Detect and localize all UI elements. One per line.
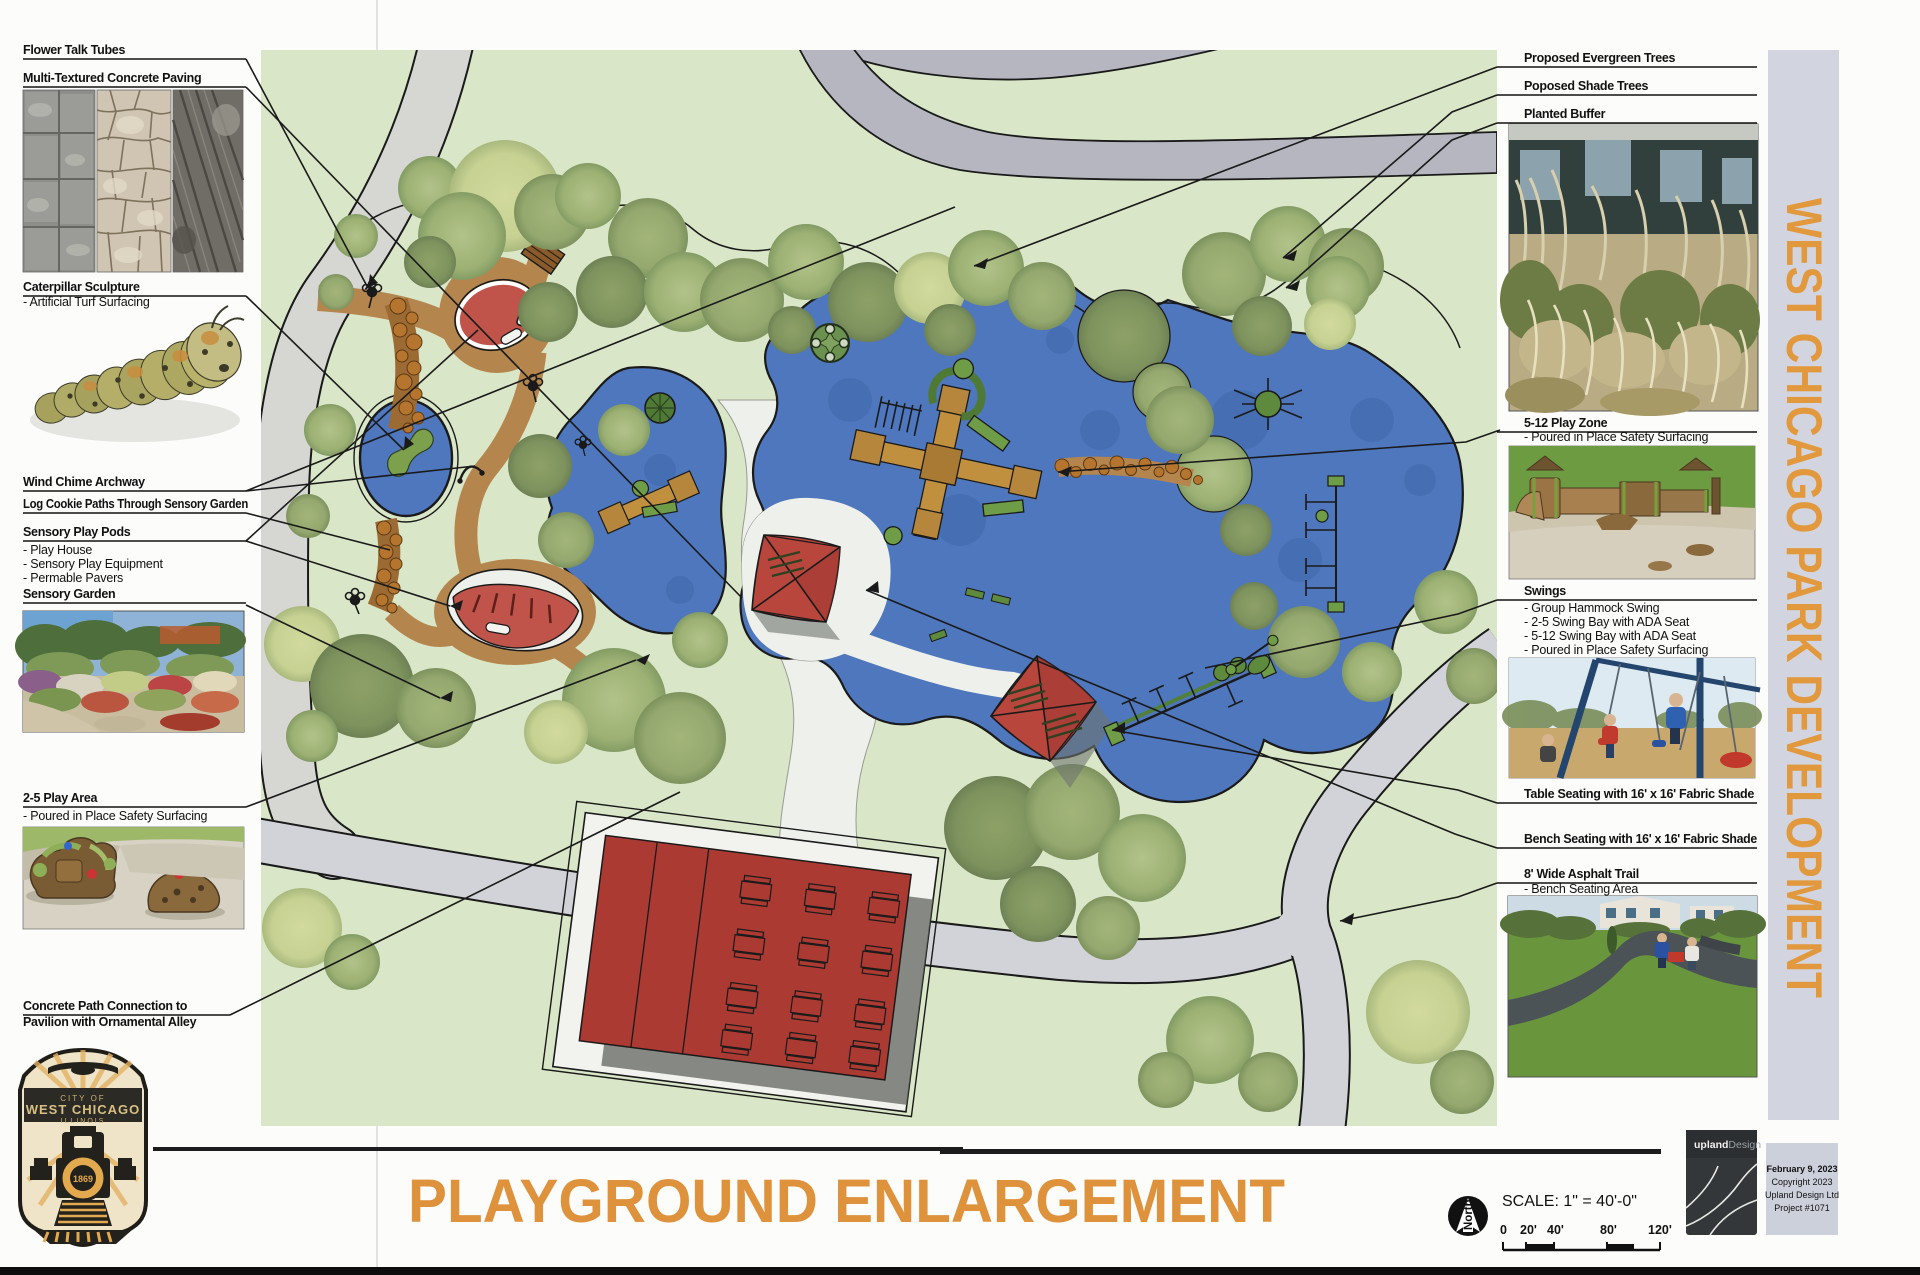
svg-text:Planted Buffer: Planted Buffer xyxy=(1524,107,1606,121)
svg-text:WEST CHICAGO PARK DEVELOPMENT: WEST CHICAGO PARK DEVELOPMENT xyxy=(1776,198,1832,998)
svg-text:0: 0 xyxy=(1500,1223,1507,1237)
svg-text:Upland Design Ltd: Upland Design Ltd xyxy=(1765,1190,1839,1200)
svg-text:ILLINOIS: ILLINOIS xyxy=(61,1118,106,1125)
svg-text:Table Seating with 16' x 16' F: Table Seating with 16' x 16' Fabric Shad… xyxy=(1524,787,1754,801)
svg-text:uplandDesign: uplandDesign xyxy=(1694,1139,1761,1151)
svg-text:Flower Talk Tubes: Flower Talk Tubes xyxy=(23,43,125,57)
svg-text:- 5-12 Swing Bay with ADA Seat: - 5-12 Swing Bay with ADA Seat xyxy=(1524,629,1697,643)
svg-text:Sensory Play Pods: Sensory Play Pods xyxy=(23,525,131,539)
svg-text:- Artificial Turf Surfacing: - Artificial Turf Surfacing xyxy=(23,295,150,309)
svg-text:120': 120' xyxy=(1648,1223,1672,1237)
svg-text:2-5 Play Area: 2-5 Play Area xyxy=(23,791,99,805)
svg-text:Proposed Evergreen Trees: Proposed Evergreen Trees xyxy=(1524,51,1676,65)
svg-text:40': 40' xyxy=(1547,1223,1564,1237)
svg-text:- Sensory Play Equipment: - Sensory Play Equipment xyxy=(23,557,163,571)
svg-text:20': 20' xyxy=(1520,1223,1537,1237)
svg-text:80': 80' xyxy=(1600,1223,1617,1237)
svg-text:PLAYGROUND ENLARGEMENT: PLAYGROUND ENLARGEMENT xyxy=(408,1167,1285,1235)
svg-text:- Poured in Place Safety Surfa: - Poured in Place Safety Surfacing xyxy=(23,809,208,823)
svg-text:Swings: Swings xyxy=(1524,584,1566,598)
svg-text:Copyright 2023: Copyright 2023 xyxy=(1771,1177,1832,1187)
svg-text:1869: 1869 xyxy=(73,1174,93,1184)
svg-text:North: North xyxy=(1463,1199,1475,1230)
svg-text:Poposed Shade Trees: Poposed Shade Trees xyxy=(1524,79,1649,93)
svg-text:WEST CHICAGO: WEST CHICAGO xyxy=(26,1102,141,1117)
svg-text:- Bench Seating Area: - Bench Seating Area xyxy=(1524,882,1638,896)
svg-text:Project #1071: Project #1071 xyxy=(1774,1203,1830,1213)
svg-text:8' Wide Asphalt Trail: 8' Wide Asphalt Trail xyxy=(1524,867,1639,881)
svg-text:Wind Chime Archway: Wind Chime Archway xyxy=(23,475,145,489)
svg-text:Bench Seating with 16' x 16' F: Bench Seating with 16' x 16' Fabric Shad… xyxy=(1524,832,1757,846)
svg-text:- 2-5 Swing Bay with ADA Seat: - 2-5 Swing Bay with ADA Seat xyxy=(1524,615,1690,629)
svg-text:- Group Hammock Swing: - Group Hammock Swing xyxy=(1524,601,1660,615)
svg-text:Log Cookie Paths Through Senso: Log Cookie Paths Through Sensory Garden xyxy=(23,497,248,511)
svg-text:SCALE: 1" = 40'-0": SCALE: 1" = 40'-0" xyxy=(1502,1193,1637,1210)
svg-text:February 9, 2023: February 9, 2023 xyxy=(1766,1164,1837,1174)
svg-text:Sensory Garden: Sensory Garden xyxy=(23,587,115,601)
svg-text:Pavilion with Ornamental Alley: Pavilion with Ornamental Alley xyxy=(23,1015,197,1029)
svg-text:Multi-Textured Concrete Paving: Multi-Textured Concrete Paving xyxy=(23,71,201,85)
svg-text:- Poured in Place Safety Surfa: - Poured in Place Safety Surfacing xyxy=(1524,643,1709,657)
svg-text:Concrete Path Connection to: Concrete Path Connection to xyxy=(23,999,188,1013)
svg-text:- Permable Pavers: - Permable Pavers xyxy=(23,571,123,585)
svg-text:Caterpillar Sculpture: Caterpillar Sculpture xyxy=(23,280,140,294)
svg-text:5-12 Play Zone: 5-12 Play Zone xyxy=(1524,416,1608,430)
svg-text:- Play House: - Play House xyxy=(23,543,92,557)
svg-text:- Poured in Place Safety Surfa: - Poured in Place Safety Surfacing xyxy=(1524,430,1709,444)
